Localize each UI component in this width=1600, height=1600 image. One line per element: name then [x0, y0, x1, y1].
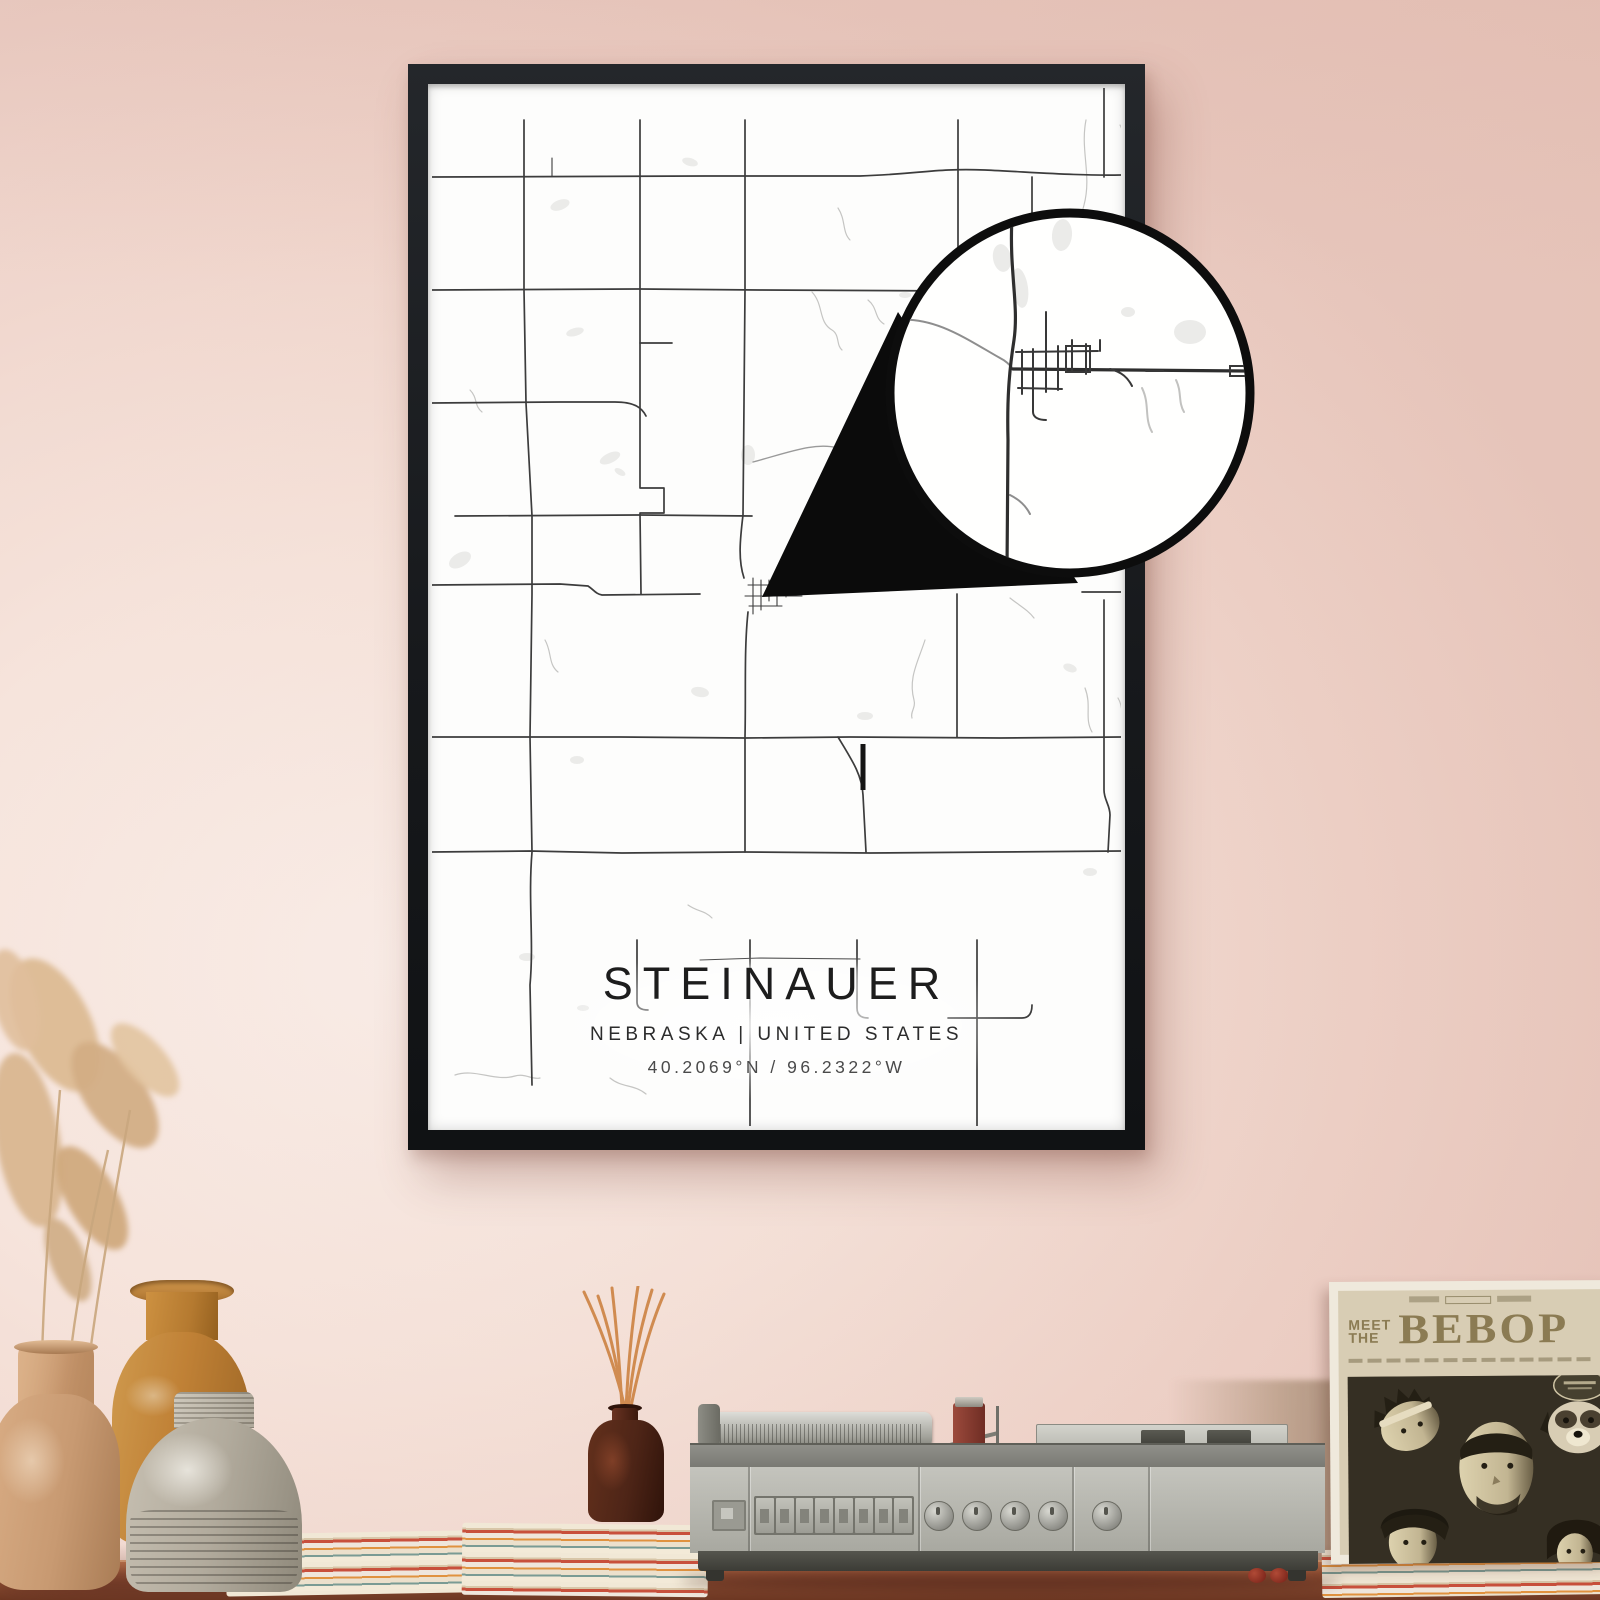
player-base	[698, 1551, 1318, 1571]
magnifier-lens	[890, 213, 1250, 573]
poster-text-block: STEINAUER NEBRASKA | UNITED STATES 40.20…	[428, 940, 1125, 1110]
control-knob	[1000, 1501, 1030, 1531]
room-product-photo: STEINAUER NEBRASKA | UNITED STATES 40.20…	[0, 0, 1600, 1600]
preset-key	[835, 1498, 853, 1533]
deck-edge	[690, 1443, 1325, 1469]
preset-key	[855, 1498, 873, 1533]
poster-coordinates: 40.2069°N / 96.2322°W	[428, 1057, 1125, 1078]
sleeve-title-row: MEET THE BEBOP	[1346, 1309, 1600, 1357]
control-knob	[1092, 1501, 1122, 1531]
control-knob	[962, 1501, 992, 1531]
sleeve-artwork	[1348, 1375, 1600, 1564]
preset-key	[894, 1498, 912, 1533]
sleeve-album-title: BEBOP	[1398, 1303, 1569, 1353]
sleeve-credits-line	[1349, 1357, 1593, 1363]
record-player	[690, 1398, 1325, 1586]
player-foot	[706, 1570, 724, 1581]
sleeve-the-label: THE	[1348, 1332, 1391, 1345]
preset-key	[815, 1498, 833, 1533]
preset-key	[796, 1498, 814, 1533]
preset-button-row	[754, 1496, 914, 1535]
preset-key	[756, 1498, 774, 1533]
control-knob	[1038, 1501, 1068, 1531]
gray-bell-vase	[126, 1392, 302, 1592]
red-trinket	[1248, 1568, 1292, 1584]
poster-region-line: NEBRASKA | UNITED STATES	[428, 1024, 1125, 1046]
preset-key	[776, 1498, 794, 1533]
tan-vase	[0, 1342, 120, 1590]
record-sleeve: MEET THE BEBOP	[1329, 1280, 1600, 1564]
preset-key	[875, 1498, 893, 1533]
power-button	[712, 1500, 746, 1531]
control-knob	[924, 1501, 954, 1531]
poster-title: STEINAUER	[428, 958, 1125, 1010]
sleeve-front: MEET THE BEBOP	[1338, 1289, 1600, 1555]
